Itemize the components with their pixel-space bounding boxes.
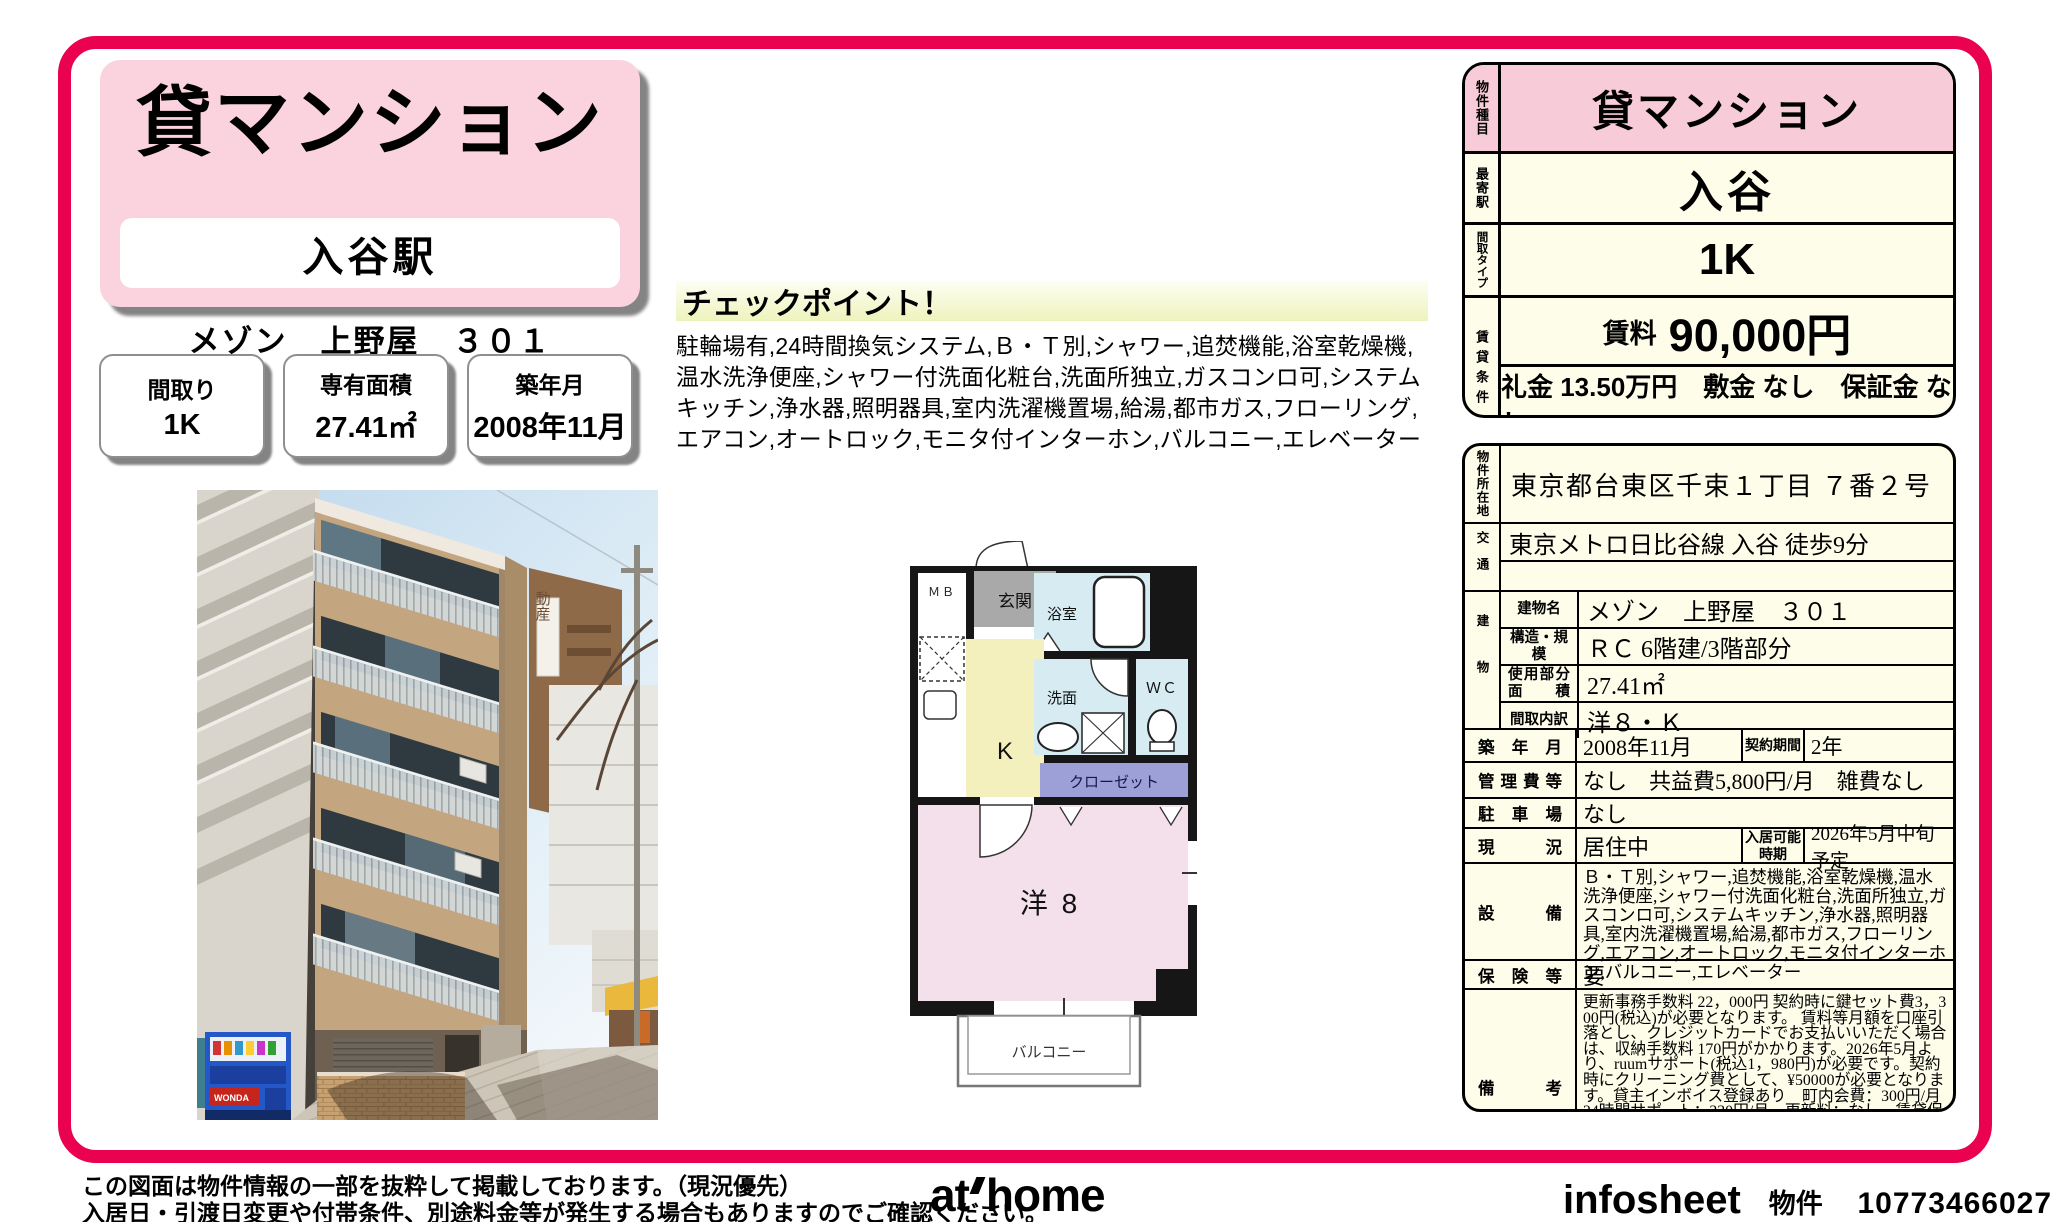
row-label: 構造・規模 — [1501, 629, 1579, 664]
building-name-value: メゾン 上野屋 ３０１ — [1579, 592, 1953, 627]
summary-label: 築年月 — [516, 366, 585, 400]
summary-label: 間取り — [148, 371, 217, 405]
logo-home: home — [986, 1172, 1105, 1218]
logo-at: at — [930, 1172, 969, 1218]
property-number-value: 10773466027 — [1857, 1187, 2052, 1221]
deposit-row: 礼金 13.50万円 敷金 なし 保証金 なし — [1501, 367, 1953, 418]
wash-label: 洗面 — [1047, 690, 1077, 707]
summary-value: 27.41㎡ — [315, 404, 417, 446]
row-label: 築年月 — [1478, 734, 1562, 758]
closet-label: クローゼット — [1069, 774, 1159, 791]
logo-hyphen-icon — [969, 1177, 985, 1194]
table-row: 管理費等 なし 共益費5,800円/月 雑費なし — [1465, 761, 1953, 797]
contract-term-value: 2年 — [1805, 730, 1953, 761]
summary-box-area: 専有面積 27.41㎡ — [283, 354, 449, 458]
vending-text: WONDA — [214, 1093, 249, 1103]
row-label: 管理費等 — [1478, 768, 1562, 792]
kitchen-label: K — [997, 738, 1013, 765]
row-label: 保険等 — [1478, 963, 1562, 987]
row-label: 駐車場 — [1478, 801, 1562, 825]
table-row: 物件種目 貸マンション — [1465, 65, 1953, 151]
row-label: 間取タイプ — [1465, 225, 1501, 295]
table-row: 交通 東京メトロ日比谷線 入谷 徒歩9分 — [1465, 522, 1953, 590]
row-label2: 契約期間 — [1741, 730, 1805, 761]
property-number-label: 物件番号 — [1769, 1182, 1840, 1222]
row-label: 建物名 — [1501, 592, 1579, 627]
checkpoint-header: チェックポイント！ — [676, 281, 1428, 321]
built-value: 2008年11月 — [1577, 730, 1741, 761]
rent-label: 賃料 — [1603, 312, 1657, 351]
infosheet-page: 貸マンション 入谷駅 メゾン 上野屋 ３０１ 間取り 1K 専有面積 27.41… — [0, 0, 2056, 1222]
property-type-value: 貸マンション — [1501, 65, 1953, 151]
kitchen-room — [966, 639, 1044, 797]
checkpoint-body: 駐輪場有,24時間換気システム,Ｂ・Ｔ別,シャワー,追焚機能,浴室乾燥機,温水洗… — [676, 331, 1434, 455]
table-row: 建物 建物名 メゾン 上野屋 ３０１ 構造・規模 ＲＣ 6階建/3階部分 使用部… — [1465, 590, 1953, 728]
structure-value: ＲＣ 6階建/3階部分 — [1579, 629, 1953, 664]
status-value: 居住中 — [1577, 829, 1741, 862]
infosheet-wordmark: infosheet — [1563, 1178, 1741, 1222]
table-row: 最寄駅 入谷 — [1465, 151, 1953, 222]
mb-label: ＭＢ — [928, 585, 956, 599]
table-row: 保険等 要 — [1465, 959, 1953, 988]
table-row: 築年月 2008年11月 契約期間 2年 — [1465, 728, 1953, 761]
row-label: 物件所在地 — [1465, 446, 1501, 522]
table-row: 賃貸条件 賃料 90,000円 礼金 13.50万円 敷金 なし 保証金 なし — [1465, 295, 1953, 418]
sign-text: 動産 — [534, 591, 551, 622]
property-type-title: 貸マンション — [100, 82, 640, 166]
table-row: 設備 Ｂ・Ｔ別,シャワー,追焚機能,浴室乾燥機,温水洗浄便座,シャワー付洗面化粧… — [1465, 862, 1953, 959]
row-label: 交通 — [1465, 524, 1501, 590]
summary-box-built: 築年月 2008年11月 — [467, 354, 633, 458]
infosheet-row: infosheet 物件番号 10773466027 — [1563, 1178, 2056, 1222]
room-label: 洋 8 — [1020, 888, 1080, 919]
table-row: 間取タイプ 1K — [1465, 222, 1953, 295]
building-photo: 動産 — [197, 490, 658, 1120]
movein-value: 2026年5月中旬予定 — [1805, 829, 1953, 862]
table-row: 現況 居住中 入居可能時期 2026年5月中旬予定 — [1465, 827, 1953, 862]
footer-note-2: 入居日・引渡日変更や付帯条件、別途料金等が発生する場合もありますのでご確認くださ… — [82, 1194, 1048, 1222]
row-label: 賃貸条件 — [1465, 298, 1501, 418]
table-row: 物件所在地 東京都台東区千束１丁目 ７番２号 — [1465, 446, 1953, 522]
table-row: 構造・規模 ＲＣ 6階建/3階部分 — [1501, 627, 1953, 664]
area-value: 27.41㎡ — [1579, 666, 1953, 701]
floor-plan: ＭＢ 玄関 浴室 K 洗面 ＷＣ クローゼット — [910, 541, 1197, 1093]
row-label: 建物 — [1465, 592, 1501, 728]
summary-box-madori: 間取り 1K — [99, 354, 265, 458]
insurance-value: 要 — [1577, 961, 1953, 988]
row-label: 使用部分 — [1508, 667, 1570, 684]
address-value: 東京都台東区千束１丁目 ７番２号 — [1501, 446, 1953, 522]
row-label: 物件種目 — [1465, 65, 1501, 151]
station-box: 入谷駅 — [120, 218, 620, 288]
fees-value: なし 共益費5,800円/月 雑費なし — [1577, 763, 1953, 797]
top-summary-table: 物件種目 貸マンション 最寄駅 入谷 間取タイプ 1K 賃貸条件 賃料 90,0… — [1462, 62, 1956, 418]
entry-door-arc — [976, 541, 1028, 569]
station-value: 入谷 — [1501, 154, 1953, 222]
row-label: 設備 — [1478, 900, 1562, 924]
row-label: 最寄駅 — [1465, 154, 1501, 222]
summary-value: 1K — [163, 409, 200, 442]
access-value: 東京メトロ日比谷線 入谷 徒歩9分 — [1501, 524, 1953, 562]
row-label2: 入居可能時期 — [1741, 829, 1805, 862]
plan-value: 1K — [1501, 225, 1953, 295]
athome-logo: at home — [930, 1172, 1105, 1218]
equipment-value: Ｂ・Ｔ別,シャワー,追焚機能,浴室乾燥機,温水洗浄便座,シャワー付洗面化粧台,洗… — [1577, 864, 1953, 959]
detail-table: 物件所在地 東京都台東区千束１丁目 ７番２号 交通 東京メトロ日比谷線 入谷 徒… — [1462, 443, 1956, 1112]
rent-row: 賃料 90,000円 — [1501, 298, 1953, 367]
row-label-line2: 面積 — [1508, 684, 1570, 701]
table-row: 備考 更新事務手数料 22，000円 契約時に鍵セット費3，300円(税込)が必… — [1465, 988, 1953, 1112]
summary-boxes: 間取り 1K 専有面積 27.41㎡ 築年月 2008年11月 — [99, 354, 633, 458]
balcony-label: バルコニー — [1012, 1044, 1087, 1061]
row-label: 現況 — [1478, 834, 1562, 858]
access-empty-row — [1501, 562, 1953, 590]
property-type-box: 貸マンション 入谷駅 — [100, 60, 640, 307]
property-number: 物件番号 10773466027 — [1767, 1182, 2056, 1222]
genkan-label: 玄関 — [998, 592, 1032, 611]
vending-machine: WONDA — [205, 1032, 291, 1120]
row-label: 備考 — [1478, 1075, 1562, 1099]
rent-value: 90,000円 — [1669, 299, 1852, 364]
bath-label: 浴室 — [1047, 606, 1077, 623]
summary-label: 専有面積 — [320, 366, 412, 400]
summary-value: 2008年11月 — [473, 404, 626, 446]
table-row: 使用部分 面積 27.41㎡ — [1501, 664, 1953, 701]
wc-label: ＷＣ — [1146, 680, 1178, 697]
remarks-value: 更新事務手数料 22，000円 契約時に鍵セット費3，300円(税込)が必要とな… — [1577, 990, 1953, 1112]
table-row: 建物名 メゾン 上野屋 ３０１ — [1501, 592, 1953, 627]
